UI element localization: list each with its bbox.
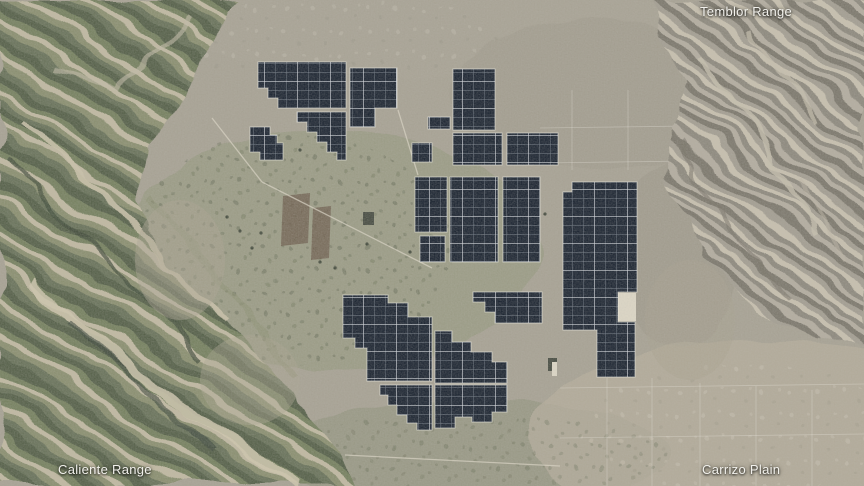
label-caliente-range: Caliente Range (58, 462, 152, 477)
label-carrizo-plain: Carrizo Plain (702, 462, 780, 477)
satellite-screenshot: Temblor Range Caliente Range Carrizo Pla… (0, 0, 864, 486)
grain-overlay (0, 0, 864, 486)
label-temblor-range: Temblor Range (700, 4, 792, 19)
satellite-image (0, 0, 864, 486)
